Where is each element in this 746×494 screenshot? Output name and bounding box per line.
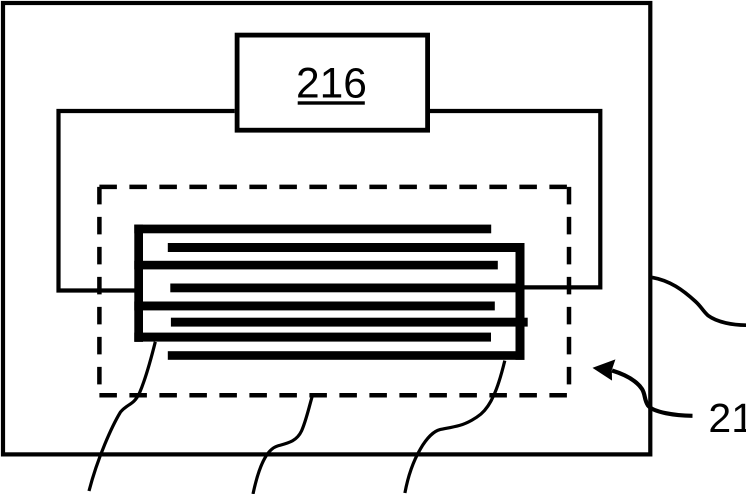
svg-text:218: 218 [708, 395, 746, 441]
svg-text:216: 216 [296, 60, 367, 107]
